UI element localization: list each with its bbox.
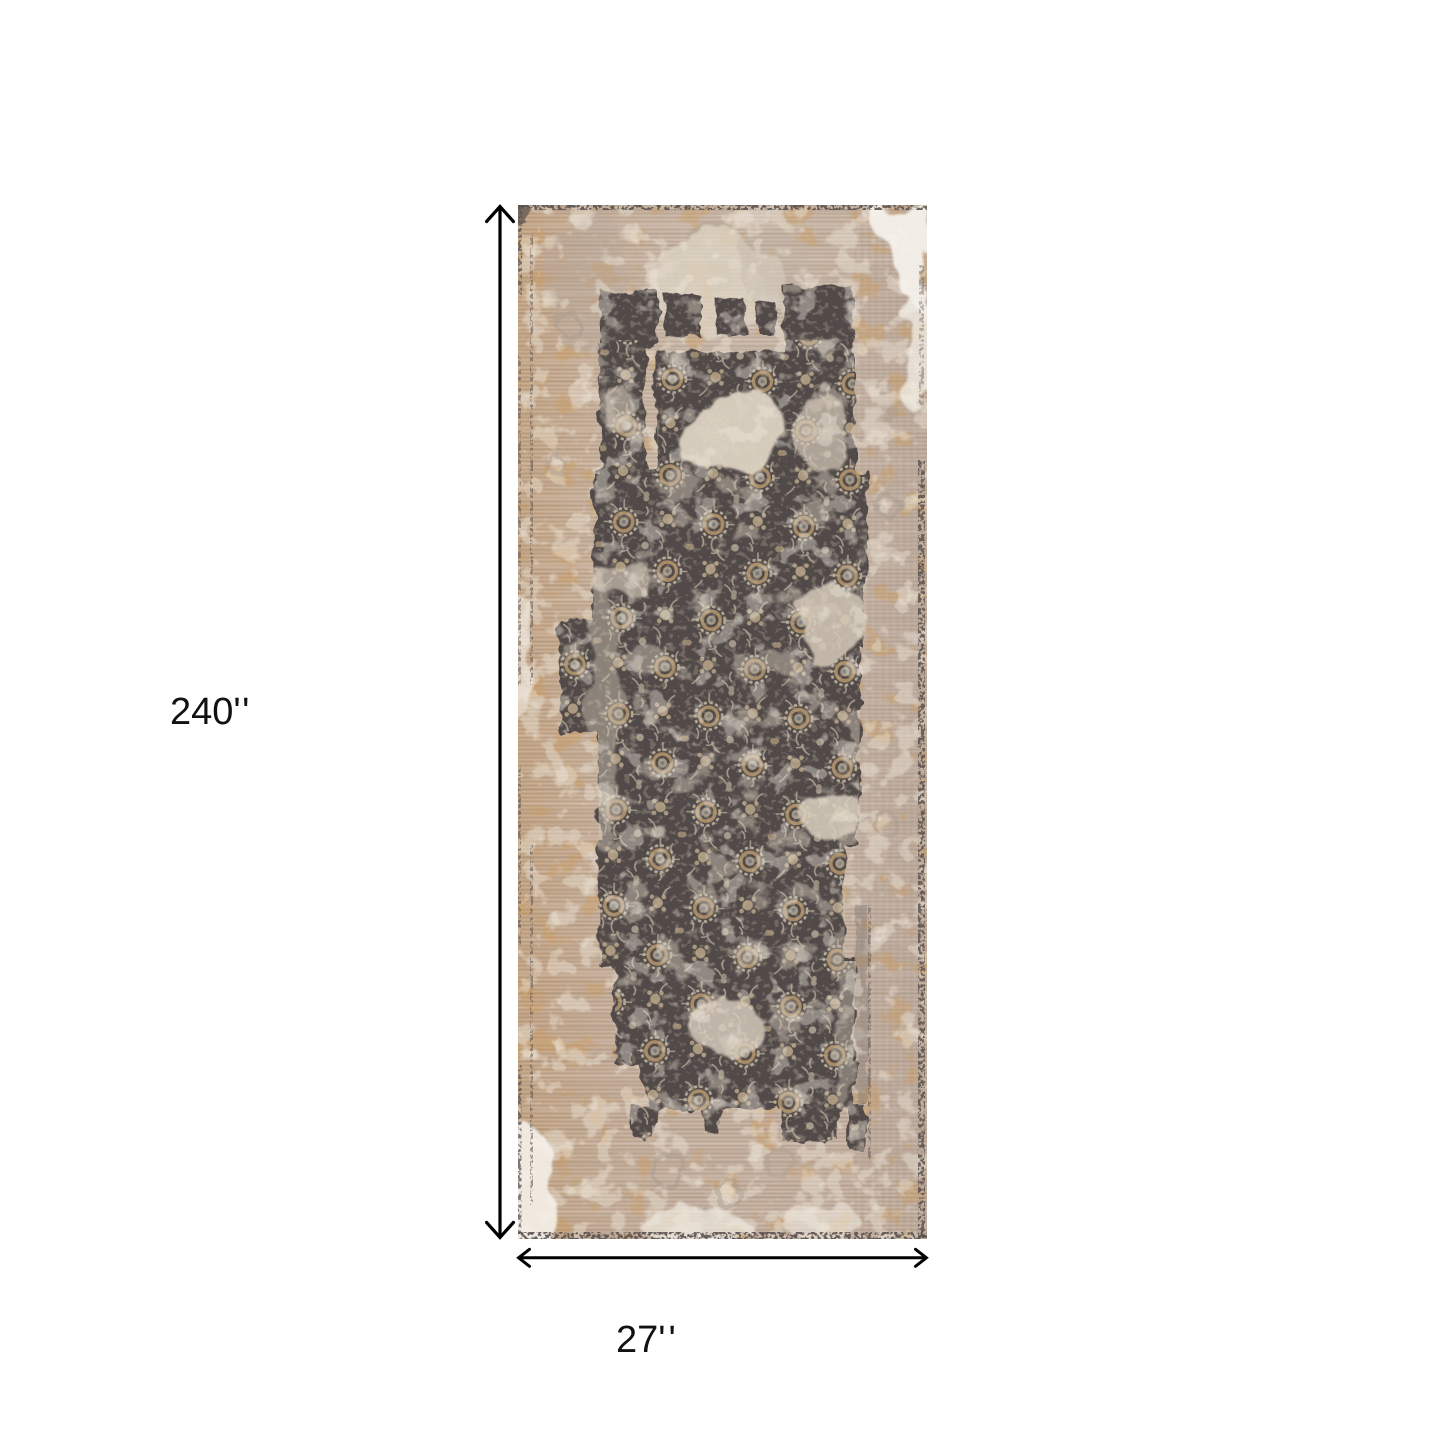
svg-text:27'': 27'' (616, 1319, 676, 1361)
svg-text:240'': 240'' (170, 691, 249, 733)
